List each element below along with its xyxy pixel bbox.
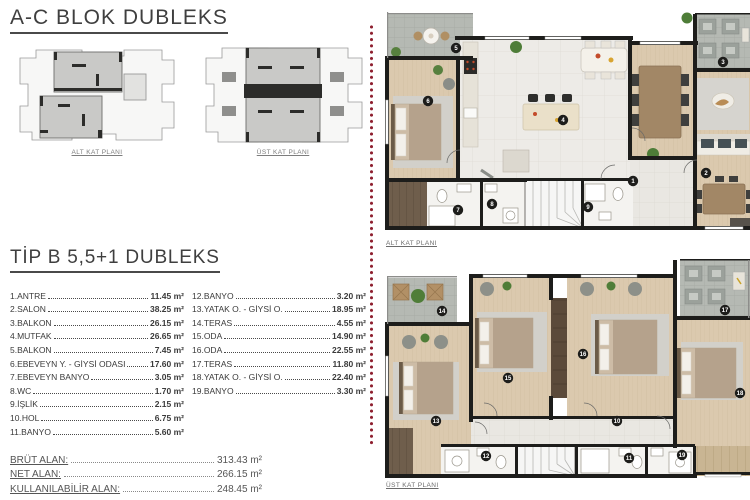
room-name: 14.TERAS bbox=[192, 318, 232, 328]
room-name: 9.İŞLİK bbox=[10, 399, 38, 409]
dotted-leader bbox=[285, 311, 330, 312]
key-plan-ust-drawing bbox=[198, 44, 368, 146]
plan-alt-label: ALT KAT PLANI bbox=[386, 240, 437, 247]
room-list-row: 9.İŞLİK2.15 m² bbox=[10, 396, 184, 410]
room-list-row: 12.BANYO3.20 m² bbox=[192, 287, 366, 301]
summary-value: 266.15 m² bbox=[217, 469, 262, 480]
room-number: 17 bbox=[722, 308, 729, 314]
dotted-leader bbox=[53, 434, 153, 435]
floor-plan-alt-kat: 564312789 bbox=[385, 8, 750, 238]
room-number: 18 bbox=[737, 391, 744, 397]
room-list-row: 19.BANYO3.30 m² bbox=[192, 382, 366, 396]
dotted-leader bbox=[285, 379, 330, 380]
area-summary: BRÜT ALAN:313.43 m²NET ALAN:266.15 m²KUL… bbox=[10, 451, 262, 495]
key-plan-alt: ALT KAT PLANI bbox=[12, 44, 182, 156]
room-name: 3.BALKON bbox=[10, 318, 52, 328]
summary-value: 248.45 m² bbox=[217, 484, 262, 495]
room-area: 2.15 m² bbox=[155, 399, 184, 409]
room-number: 12 bbox=[483, 454, 490, 460]
room-list-row: 2.SALON38.25 m² bbox=[10, 301, 184, 315]
dotted-leader bbox=[54, 338, 148, 339]
room-name: 15.ODA bbox=[192, 331, 222, 341]
room-name: 19.BANYO bbox=[192, 386, 234, 396]
dotted-divider bbox=[369, 24, 374, 445]
room-number: 13 bbox=[433, 419, 440, 425]
room-list-column-1: 1.ANTRE11.45 m²2.SALON38.25 m²3.BALKON26… bbox=[10, 287, 184, 437]
summary-label: NET ALAN: bbox=[10, 469, 61, 480]
room-name: 12.BANYO bbox=[192, 291, 234, 301]
dotted-leader bbox=[224, 338, 330, 339]
dotted-leader bbox=[91, 379, 152, 380]
room-list-row: 3.BALKON26.15 m² bbox=[10, 314, 184, 328]
room-list-row: 5.BALKON7.45 m² bbox=[10, 341, 184, 355]
room-name: 4.MUTFAK bbox=[10, 331, 52, 341]
unit-type-heading: TİP B 5,5+1 DUBLEKS bbox=[10, 247, 220, 273]
room-area: 3.30 m² bbox=[337, 386, 366, 396]
dotted-leader bbox=[236, 298, 335, 299]
room-number: 10 bbox=[614, 419, 621, 425]
room-area: 6.75 m² bbox=[155, 413, 184, 423]
room-name: 10.HOL bbox=[10, 413, 39, 423]
room-list-row: 8.WC1.70 m² bbox=[10, 382, 184, 396]
room-list-row: 16.ODA22.55 m² bbox=[192, 341, 366, 355]
room-area: 26.15 m² bbox=[150, 318, 184, 328]
room-number: 15 bbox=[505, 376, 512, 382]
room-number: 11 bbox=[626, 456, 633, 462]
room-name: 5.BALKON bbox=[10, 345, 52, 355]
brochure-page: A-C BLOK DUBLEKS bbox=[0, 0, 750, 500]
living-room-2-furniture bbox=[695, 78, 750, 226]
summary-row: BRÜT ALAN:313.43 m² bbox=[10, 451, 262, 466]
key-plan-ust: ÜST KAT PLANI bbox=[198, 44, 368, 156]
room-area: 3.20 m² bbox=[337, 291, 366, 301]
room-name: 6.EBEVEYN Y. - GİYSİ ODASI bbox=[10, 359, 125, 369]
room-list-row: 18.YATAK O. - GİYSİ O.22.40 m² bbox=[192, 369, 366, 383]
room-area: 3.05 m² bbox=[155, 372, 184, 382]
room-name: 8.WC bbox=[10, 386, 31, 396]
room-area: 22.40 m² bbox=[332, 372, 366, 382]
room-list-row: 7.EBEVEYN BANYO3.05 m² bbox=[10, 369, 184, 383]
room-area: 22.55 m² bbox=[332, 345, 366, 355]
room-area: 38.25 m² bbox=[150, 304, 184, 314]
room-area: 11.80 m² bbox=[332, 359, 366, 369]
dotted-leader bbox=[234, 366, 330, 367]
room-area: 26.65 m² bbox=[150, 331, 184, 341]
key-plan-alt-drawing bbox=[12, 44, 182, 146]
room-list-row: 1.ANTRE11.45 m² bbox=[10, 287, 184, 301]
room-list-row: 13.YATAK O. - GİYSİ O.18.95 m² bbox=[192, 301, 366, 315]
summary-value: 313.43 m² bbox=[217, 455, 262, 466]
room-list-row: 15.ODA14.90 m² bbox=[192, 328, 366, 342]
dotted-leader bbox=[54, 352, 153, 353]
room-name: 2.SALON bbox=[10, 304, 46, 314]
room-number: 16 bbox=[580, 352, 587, 358]
room-area: 11.45 m² bbox=[150, 291, 184, 301]
room-area: 7.45 m² bbox=[155, 345, 184, 355]
room-list-row: 14.TERAS4.55 m² bbox=[192, 314, 366, 328]
key-plans: ALT KAT PLANI ÜST K bbox=[12, 44, 368, 156]
dotted-leader bbox=[236, 393, 335, 394]
plan-ust-label: ÜST KAT PLANI bbox=[386, 482, 439, 489]
page-title: A-C BLOK DUBLEKS bbox=[10, 6, 228, 34]
dotted-leader bbox=[33, 393, 152, 394]
room-name: 7.EBEVEYN BANYO bbox=[10, 372, 89, 382]
dotted-leader bbox=[123, 491, 214, 492]
key-plan-ust-label: ÜST KAT PLANI bbox=[198, 149, 368, 156]
room-area: 5.60 m² bbox=[155, 427, 184, 437]
room-name: 11.BANYO bbox=[10, 427, 51, 437]
summary-label: BRÜT ALAN: bbox=[10, 455, 68, 466]
floor-plan-ust-kat: 14131516171810121119 bbox=[385, 256, 750, 480]
dotted-leader bbox=[71, 462, 214, 463]
staircase bbox=[525, 180, 583, 228]
room-list-row: 10.HOL6.75 m² bbox=[10, 409, 184, 423]
room-list-row: 4.MUTFAK26.65 m² bbox=[10, 328, 184, 342]
room-list-column-2: 12.BANYO3.20 m²13.YATAK O. - GİYSİ O.18.… bbox=[192, 287, 366, 396]
room-name: 18.YATAK O. - GİYSİ O. bbox=[192, 372, 283, 382]
dotted-leader bbox=[48, 298, 149, 299]
room-number: 19 bbox=[679, 453, 686, 459]
dotted-leader bbox=[234, 325, 335, 326]
dotted-leader bbox=[40, 406, 153, 407]
room-area: 14.90 m² bbox=[332, 331, 366, 341]
summary-label: KULLANILABİLİR ALAN: bbox=[10, 484, 120, 495]
room-area: 18.95 m² bbox=[332, 304, 366, 314]
room-list-row: 17.TERAS11.80 m² bbox=[192, 355, 366, 369]
room-list-row: 6.EBEVEYN Y. - GİYSİ ODASI17.60 m² bbox=[10, 355, 184, 369]
room-area: 4.55 m² bbox=[337, 318, 366, 328]
dotted-leader bbox=[41, 420, 152, 421]
staircase bbox=[517, 446, 575, 476]
dotted-leader bbox=[54, 325, 148, 326]
room-name: 13.YATAK O. - GİYSİ O. bbox=[192, 304, 283, 314]
dotted-leader bbox=[64, 476, 214, 477]
room-area: 1.70 m² bbox=[155, 386, 184, 396]
room-area: 17.60 m² bbox=[150, 359, 184, 369]
key-plan-alt-label: ALT KAT PLANI bbox=[12, 149, 182, 156]
room-name: 1.ANTRE bbox=[10, 291, 46, 301]
bedroom-18-furniture bbox=[677, 342, 743, 400]
summary-row: NET ALAN:266.15 m² bbox=[10, 466, 262, 481]
dotted-leader bbox=[48, 311, 148, 312]
room-list-row: 11.BANYO5.60 m² bbox=[10, 423, 184, 437]
room-number: 14 bbox=[439, 309, 446, 315]
room-name: 16.ODA bbox=[192, 345, 222, 355]
summary-row: KULLANILABİLİR ALAN:248.45 m² bbox=[10, 480, 262, 495]
room-name: 17.TERAS bbox=[192, 359, 232, 369]
dotted-leader bbox=[127, 366, 148, 367]
dotted-leader bbox=[224, 352, 330, 353]
